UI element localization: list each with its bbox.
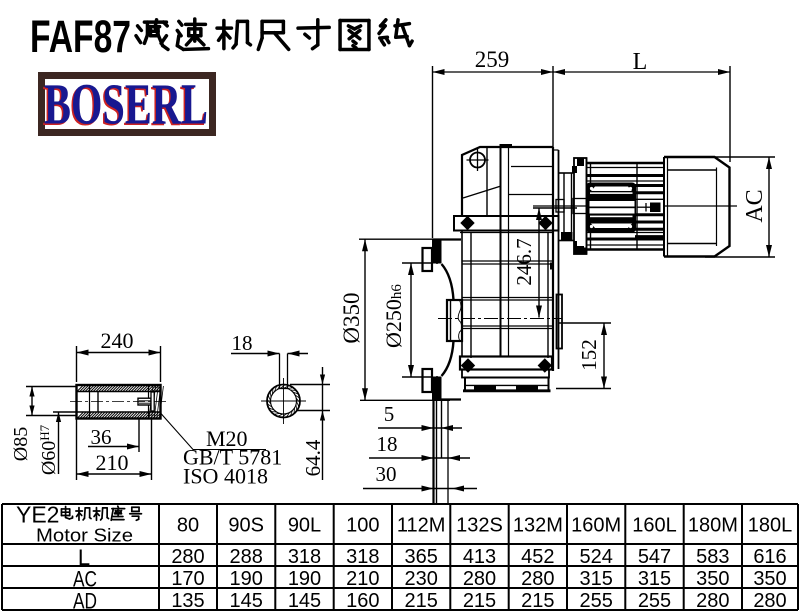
svg-text:112M: 112M bbox=[397, 515, 446, 537]
svg-text:AC: AC bbox=[742, 189, 768, 222]
svg-text:Ø350: Ø350 bbox=[339, 292, 364, 343]
svg-text:64.4: 64.4 bbox=[301, 439, 325, 476]
svg-text:255: 255 bbox=[638, 590, 671, 612]
svg-text:36: 36 bbox=[91, 425, 112, 449]
svg-text:246.7: 246.7 bbox=[512, 238, 536, 285]
svg-text:350: 350 bbox=[753, 568, 786, 590]
svg-text:160L: 160L bbox=[632, 515, 677, 537]
svg-text:18: 18 bbox=[377, 432, 398, 456]
svg-text:AD: AD bbox=[73, 589, 97, 614]
svg-text:160: 160 bbox=[346, 590, 379, 612]
svg-text:L: L bbox=[633, 49, 648, 75]
svg-text:BOSERL: BOSERL bbox=[44, 71, 208, 136]
svg-text:100: 100 bbox=[346, 515, 379, 537]
svg-text:215: 215 bbox=[463, 590, 496, 612]
svg-text:90S: 90S bbox=[228, 515, 264, 537]
svg-text:90L: 90L bbox=[288, 515, 321, 537]
svg-text:FAF87: FAF87 bbox=[30, 11, 131, 62]
svg-text:318: 318 bbox=[288, 546, 321, 568]
svg-text:160M: 160M bbox=[571, 515, 621, 537]
svg-text:190: 190 bbox=[288, 568, 321, 590]
svg-text:230: 230 bbox=[404, 568, 437, 590]
svg-text:524: 524 bbox=[579, 546, 612, 568]
svg-text:135: 135 bbox=[171, 590, 204, 612]
svg-text:583: 583 bbox=[696, 546, 729, 568]
svg-text:288: 288 bbox=[229, 546, 262, 568]
svg-text:145: 145 bbox=[288, 590, 321, 612]
svg-text:30: 30 bbox=[376, 462, 397, 486]
svg-text:215: 215 bbox=[521, 590, 554, 612]
svg-text:132S: 132S bbox=[456, 515, 503, 537]
svg-text:170: 170 bbox=[171, 568, 204, 590]
svg-text:413: 413 bbox=[463, 546, 496, 568]
svg-text:210: 210 bbox=[346, 568, 379, 590]
svg-text:180M: 180M bbox=[688, 515, 738, 537]
svg-text:132M: 132M bbox=[513, 515, 563, 537]
svg-text:145: 145 bbox=[229, 590, 262, 612]
svg-text:ISO 4018: ISO 4018 bbox=[183, 464, 268, 489]
svg-text:547: 547 bbox=[638, 546, 671, 568]
svg-text:Ø85: Ø85 bbox=[10, 427, 32, 461]
svg-text:315: 315 bbox=[579, 568, 612, 590]
svg-text:280: 280 bbox=[171, 546, 204, 568]
svg-text:280: 280 bbox=[463, 568, 496, 590]
svg-text:215: 215 bbox=[404, 590, 437, 612]
svg-text:365: 365 bbox=[404, 546, 437, 568]
svg-text:255: 255 bbox=[579, 590, 612, 612]
svg-text:18: 18 bbox=[232, 331, 253, 355]
svg-text:Motor Size: Motor Size bbox=[36, 525, 133, 546]
svg-text:318: 318 bbox=[346, 546, 379, 568]
svg-text:259: 259 bbox=[475, 47, 510, 72]
svg-text:180L: 180L bbox=[748, 515, 793, 537]
svg-text:280: 280 bbox=[696, 590, 729, 612]
svg-text:190: 190 bbox=[229, 568, 262, 590]
svg-text:240: 240 bbox=[101, 328, 134, 353]
svg-text:80: 80 bbox=[177, 515, 199, 537]
svg-text:280: 280 bbox=[521, 568, 554, 590]
svg-text:210: 210 bbox=[96, 450, 129, 475]
svg-text:616: 616 bbox=[753, 546, 786, 568]
svg-text:452: 452 bbox=[521, 546, 554, 568]
svg-text:280: 280 bbox=[753, 590, 786, 612]
svg-text:315: 315 bbox=[638, 568, 671, 590]
svg-text:152: 152 bbox=[577, 339, 601, 371]
svg-text:5: 5 bbox=[384, 402, 395, 426]
svg-text:350: 350 bbox=[696, 568, 729, 590]
